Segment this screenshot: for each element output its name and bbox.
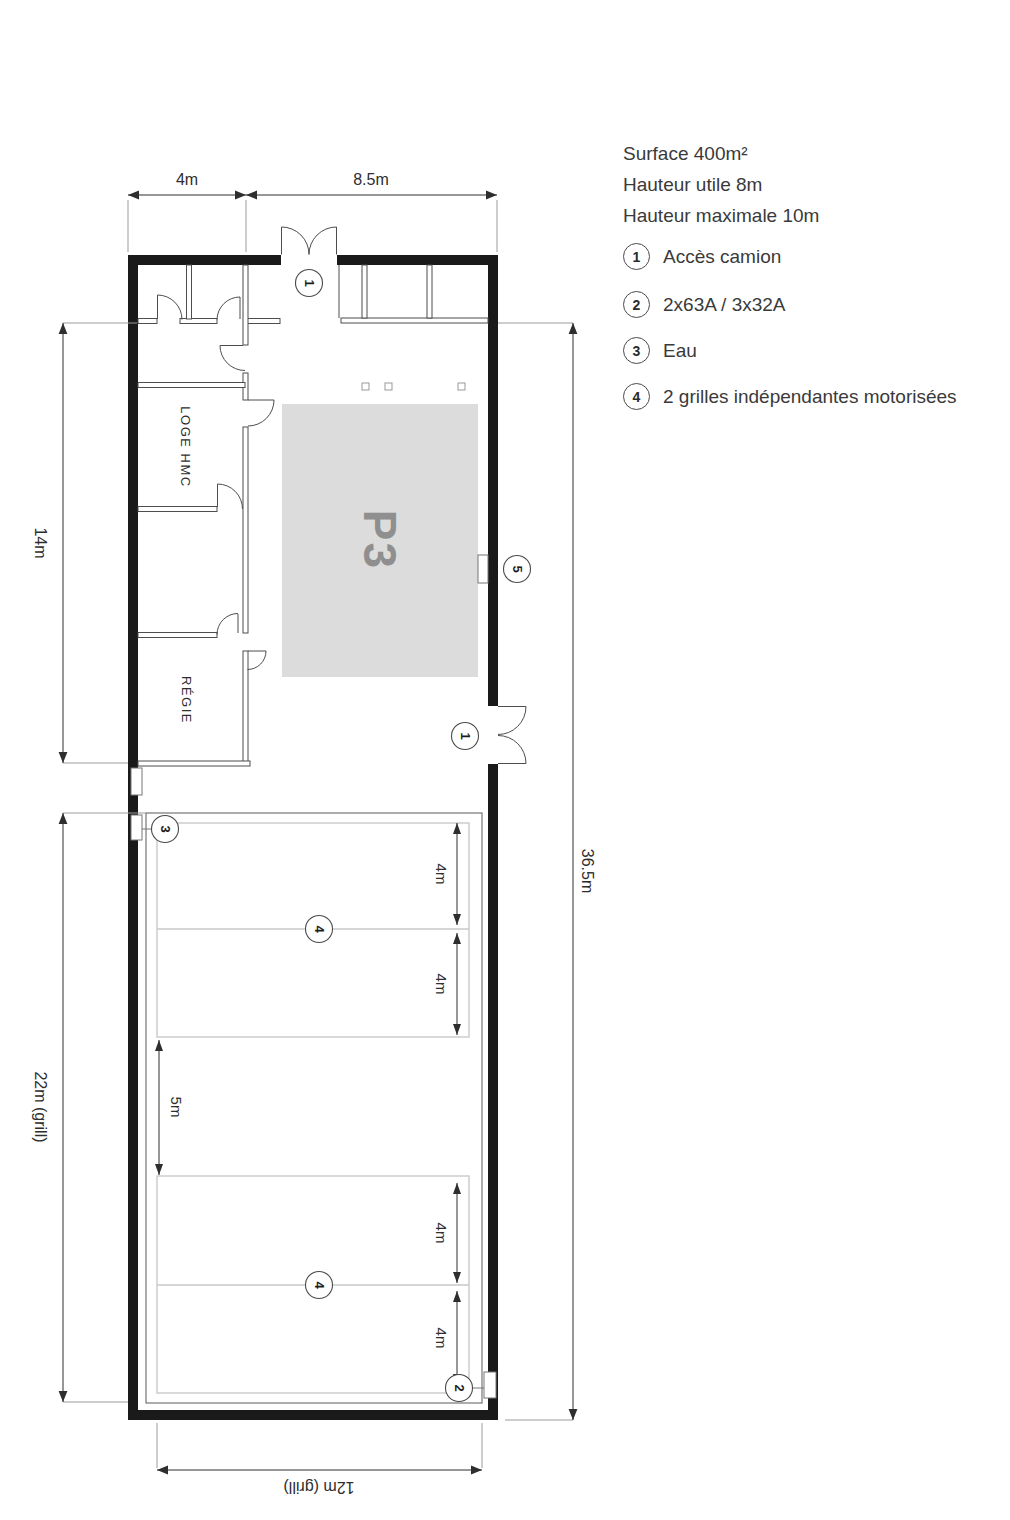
marker-digit: 1 [458,732,473,739]
stage-label: P3 [354,510,406,570]
door-hall-upper [220,346,245,371]
dimension-grill-upper-4m-b: 4m [433,933,462,1035]
dim-label-grill-4m: 4m [433,1328,450,1349]
door-corridor-1 [158,295,183,320]
water-box-1 [131,768,142,795]
water-box-2 [131,815,142,840]
door-loge-top [248,400,274,426]
dimension-grill-lower-4m-b: 4m [433,1291,462,1385]
door-corridor-2 [217,297,240,320]
marker-digit: 4 [312,1281,327,1289]
marker-water: 3 [152,816,179,843]
marker-digit: 3 [158,825,173,832]
dim-label-5m: 5m [168,1097,185,1118]
socket-icon [385,383,392,390]
dim-label-4m-top: 4m [176,171,198,188]
marker-hatch-5: 5 [504,556,531,583]
legend-badge-1: 1 [623,243,650,270]
dim-label-grill-4m: 4m [433,864,450,885]
legend-item-grilles: 4 2 grilles indépendantes motorisées [623,383,957,410]
legend-item-power: 2 2x63A / 3x32A [623,291,786,318]
stage-area: P3 [282,404,478,677]
legend-label-grilles: 2 grilles indépendantes motorisées [663,386,957,408]
dim-label-12m: 12m (grill) [283,1479,354,1496]
dim-label-grill-4m: 4m [433,974,450,995]
legend-item-truck-access: 1 Accès camion [623,243,781,270]
legend-label-power: 2x63A / 3x32A [663,294,786,316]
dimension-grill-upper-4m-a: 4m [433,823,462,925]
legend-badge-4: 4 [623,383,650,410]
marker-power: 2 [446,1375,473,1402]
socket-icon [362,383,369,390]
dim-label-36-5m: 36.5m [579,849,596,893]
grill-outer-rect [146,813,482,1403]
dimension-grill-lower-4m-a: 4m [433,1183,462,1283]
room-label-regie: RÉGIE [179,676,194,724]
room-label-loge: LOGE HMC [178,406,193,487]
marker-digit: 5 [510,565,525,572]
dimension-top: 4m 8.5m [128,171,497,253]
legend-height-max: Hauteur maximale 10m [623,200,1008,231]
floor-plan-svg: P3 [0,0,620,1520]
marker-grille-upper: 4 [306,916,333,943]
page: P3 [0,0,1010,1520]
marker-digit: 4 [312,925,327,933]
double-door-right [498,707,526,764]
grill-zone [146,813,482,1403]
legend-label-truck-access: Accès camion [663,246,781,268]
dimension-bottom-12m: 12m (grill) [157,1423,482,1496]
legend-label-water: Eau [663,340,697,362]
dimension-right-36-5m: 36.5m [498,323,596,1420]
door-loge-bottom [218,484,243,509]
dim-label-8-5m: 8.5m [353,171,389,188]
dim-label-14m: 14m [32,527,49,558]
legend-badge-3: 3 [623,337,650,364]
dim-label-22m: 22m (grill) [32,1071,49,1142]
socket-icon [458,383,465,390]
double-door-top [282,227,337,255]
door-regie-side [248,651,267,670]
floor-sockets [362,383,465,390]
marker-digit: 1 [302,279,317,286]
door-regie-top [217,614,238,635]
legend-height-useful: Hauteur utile 8m [623,169,1008,200]
legend-surface: Surface 400m² [623,138,1008,169]
marker-truck-access-right: 1 [452,723,479,750]
dim-label-grill-4m: 4m [433,1223,450,1244]
marker-digit: 2 [452,1384,467,1391]
legend-badge-2: 2 [623,291,650,318]
dimension-left-14m: 14m [32,323,138,763]
marker-truck-access-top: 1 [296,270,323,297]
power-box [484,1372,496,1398]
dimension-grill-gap-5m: 5m [155,1040,185,1175]
hatch-box [478,555,488,583]
marker-grille-lower: 4 [306,1272,333,1299]
legend-item-water: 3 Eau [623,337,697,364]
legend: Surface 400m² Hauteur utile 8m Hauteur m… [623,138,1008,231]
